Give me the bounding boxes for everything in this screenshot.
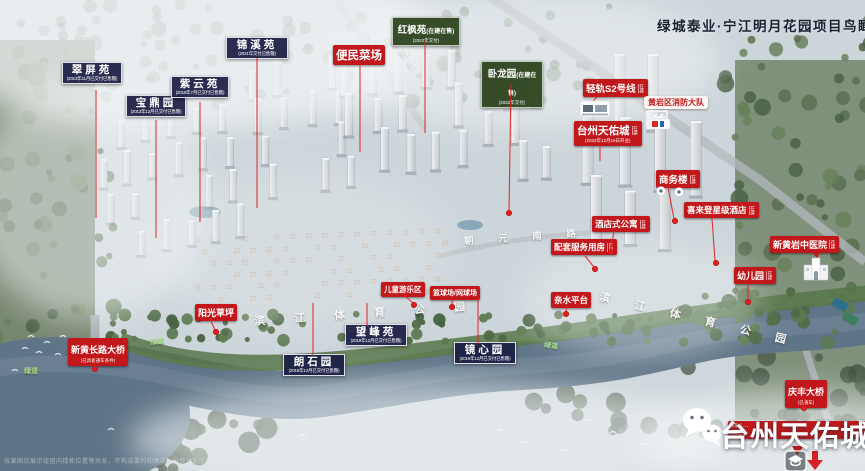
greenway-text-2: 绿道 [543, 340, 558, 352]
estate-label-ziyunyuan: 紫云苑 (2018年7月已交付已售罄) [171, 76, 229, 98]
estate-label-jingxinyuan: 镜心园 (2019年12月已交付已售罄) [454, 342, 516, 364]
poi-label-service-building: 配套服务用房 在建 [551, 239, 617, 255]
aerial-project-map: 绿城泰业·宁江明月花园项目鸟瞰 翠屏苑 (2013年11月已交付已售罄) 宝鼎园… [0, 0, 865, 471]
poi-label-apartment: 酒店式公寓 在建 [592, 216, 650, 232]
estate-name: 翠屏苑 [65, 65, 119, 76]
poi-label-office: 商务楼 在建 [656, 170, 700, 188]
greenway-text-3: 绿道 [24, 366, 38, 376]
estate-label-wangfengyuan: 望峰苑 (2019年12月已交付已售罄) [345, 324, 407, 346]
poi-label-courts: 篮球场/网球场 [430, 286, 480, 300]
page-title: 绿城泰业·宁江明月花园项目鸟瞰 [657, 15, 865, 35]
brand-watermark: 台州天佑城 [720, 413, 865, 455]
estate-label-langshiyuan: 朗石园 (2019年12月已交付已售罄) [283, 354, 345, 376]
greenway-text-1: 绿道 [150, 336, 165, 347]
estate-label-cuipingyuan: 翠屏苑 (2013年11月已交付已售罄) [62, 62, 122, 84]
poi-label-bridge-xinhuangchang: 新黄长路大桥 (已具备通车条件) [68, 338, 128, 366]
disclaimer-text: 效果图仅展示组团内楼栋位置等关系，不构成要约和承诺，最终以实际交付为准 [4, 456, 232, 465]
estate-label-baodingyuan: 宝鼎园 (2013年12月已交付已售罄) [126, 95, 186, 117]
poi-label-hotel: 喜来登星级酒店 在建 [684, 202, 759, 218]
poi-label-metro-s2: 轻轨S2号线 在建 [583, 79, 648, 97]
estate-label-jinxiyuan: 锦溪苑 (2021年交付已售罄) [226, 37, 288, 59]
poi-label-playground: 儿童游乐区 [381, 282, 425, 297]
poi-label-waterfront-platform: 亲水平台 [551, 292, 591, 308]
poi-label-bridge-qingfeng: 庆丰大桥 (已通车) [785, 380, 827, 408]
poi-label-mall: 台州天佑城在建 (2022年12月16日开业) [574, 121, 642, 146]
poi-label-fire-station: 黄岩区消防大队 [644, 96, 708, 109]
estate-label-hongfengyuan: 红枫苑(在建在售) (2022年交付) [392, 17, 460, 46]
poi-label-market: 便民菜场 [333, 45, 385, 65]
poi-label-hospital: 新黄岩中医院 在建 [770, 236, 839, 253]
poi-label-kindergarten: 幼儿园 在建 [734, 267, 776, 284]
estate-label-wolongyuan: 卧龙园(在建在售) (2022年交付) [481, 61, 543, 108]
poi-label-lawn: 阳光草坪 [195, 304, 237, 321]
aerial-render-background [0, 0, 865, 471]
estate-detail: (2013年11月已交付已售罄) [65, 76, 119, 82]
